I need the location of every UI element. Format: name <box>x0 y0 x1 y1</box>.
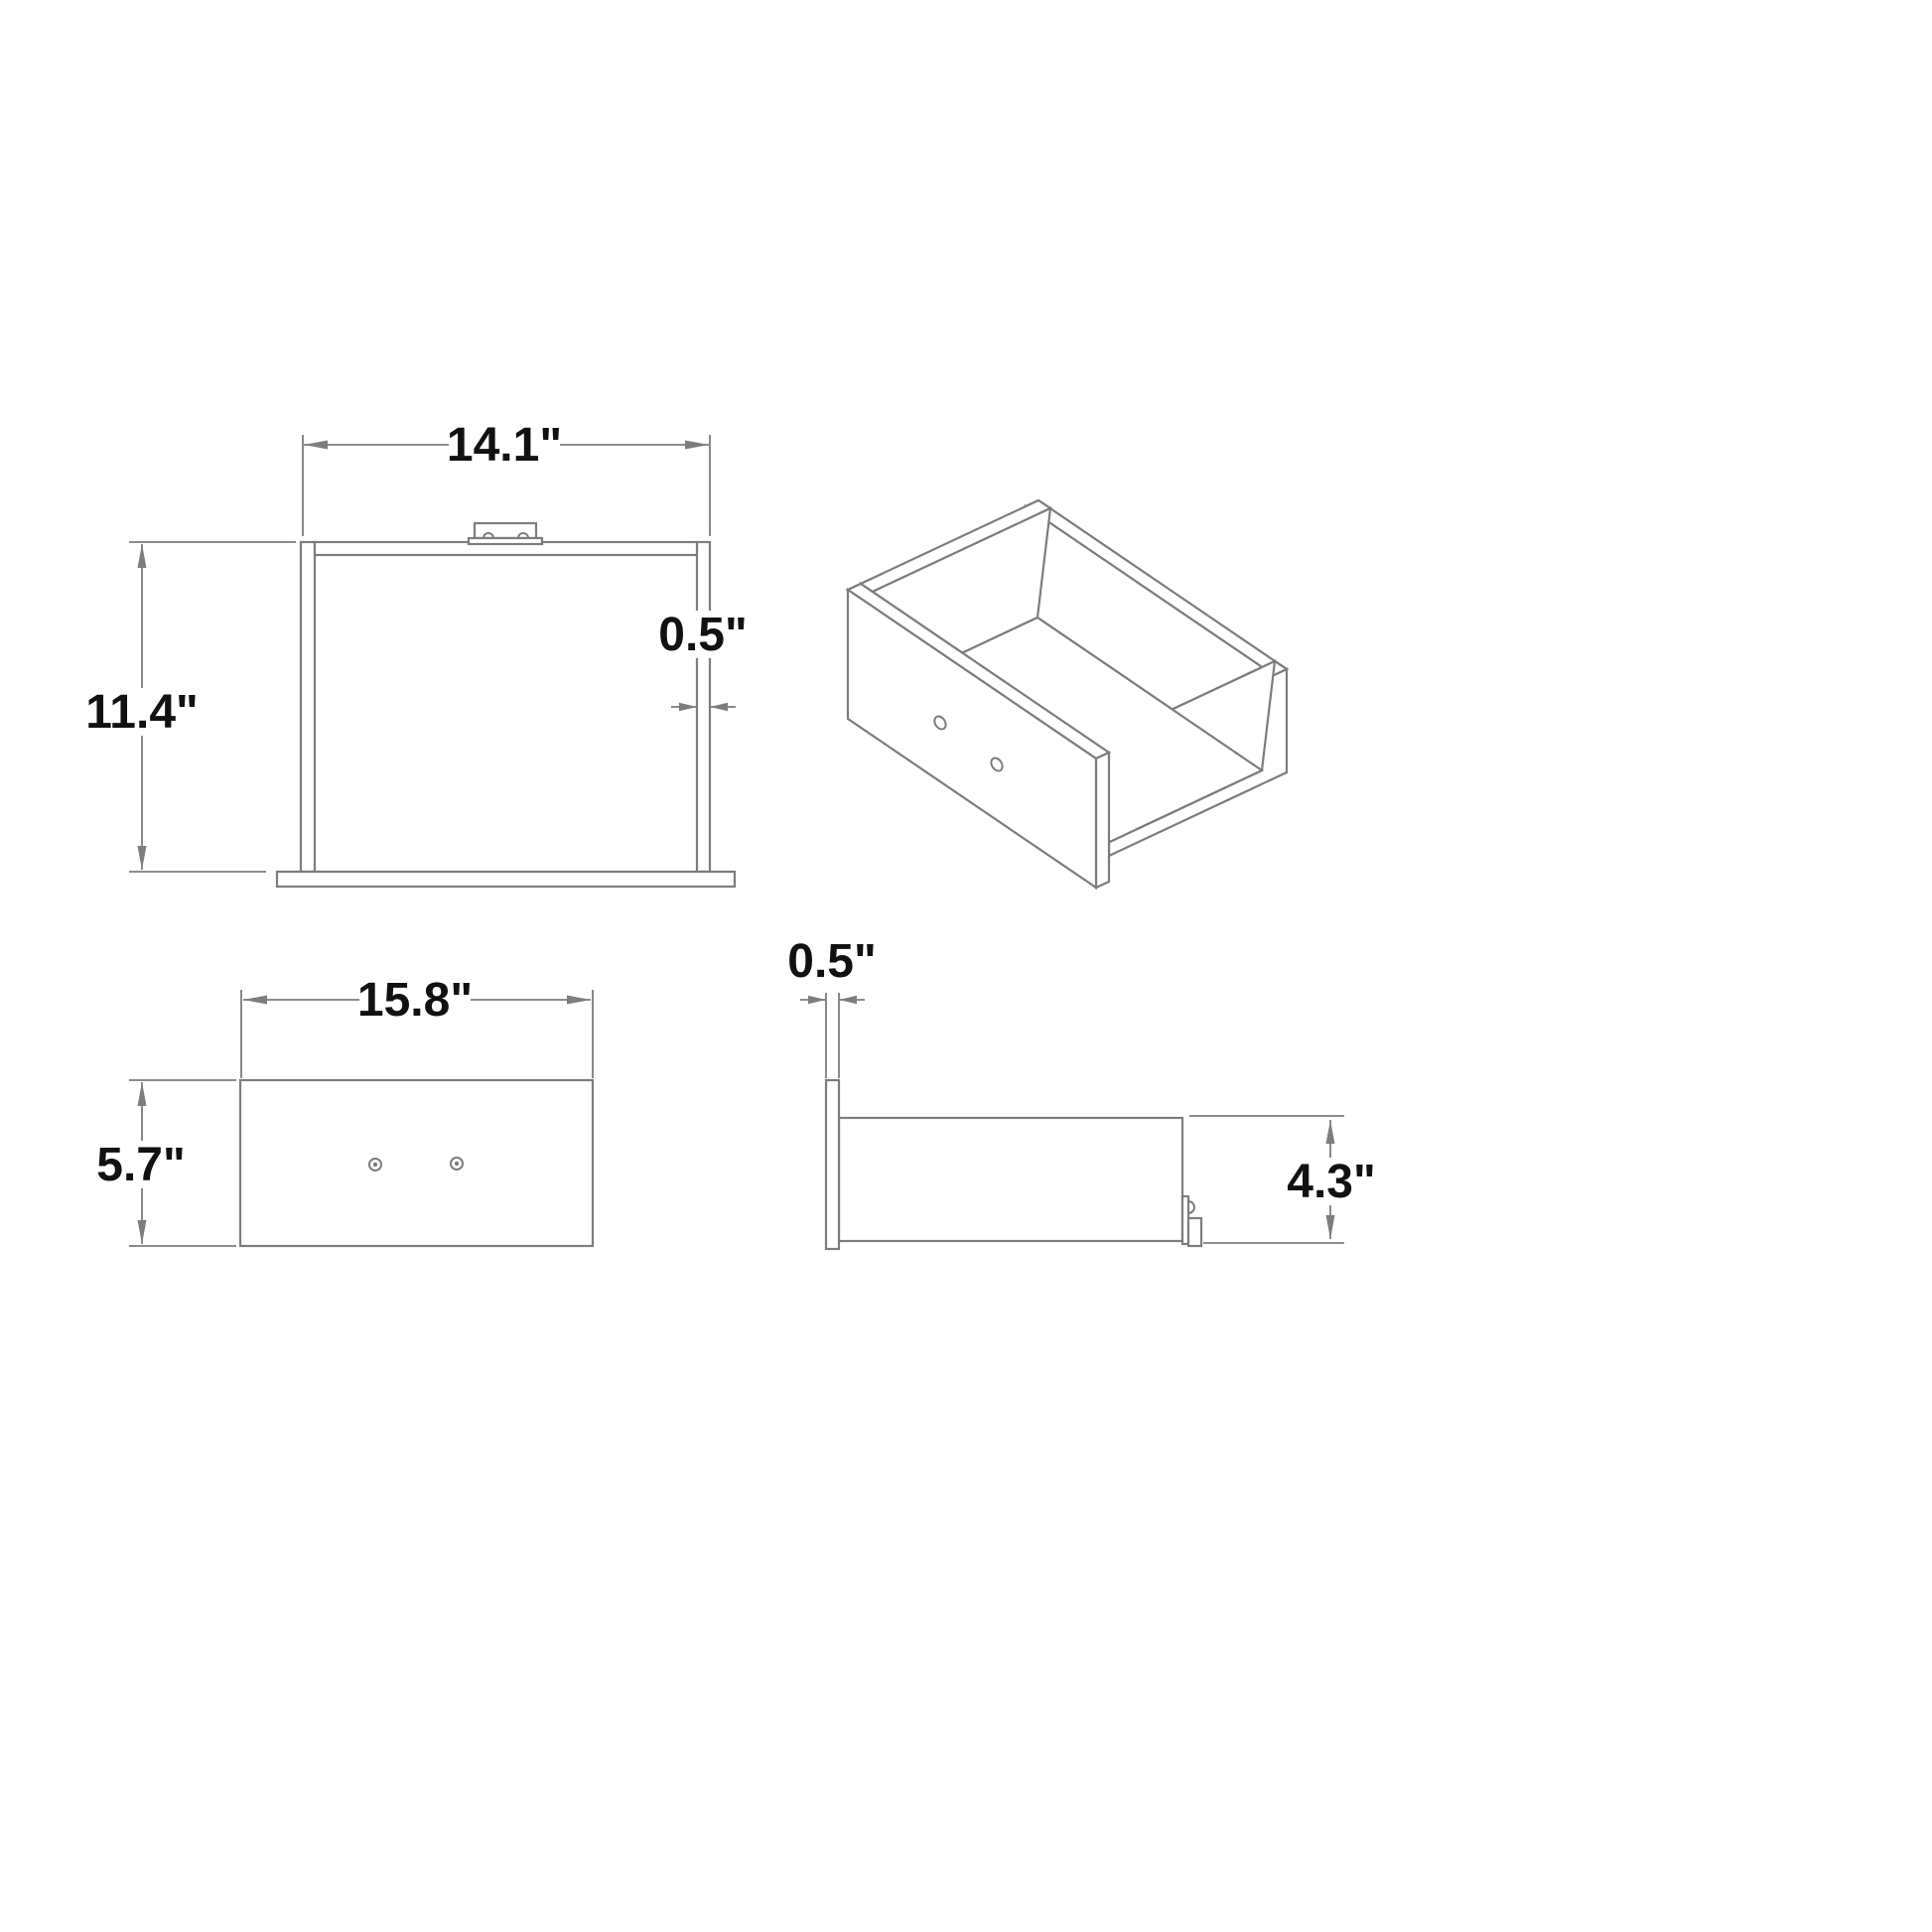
dim-side-thickness: 0.5" <box>787 935 876 1078</box>
dim-front-height: 5.7" <box>89 1080 236 1246</box>
dim-top-width: 14.1" <box>303 419 710 536</box>
side-front-panel-bar <box>826 1080 839 1249</box>
dimension-label: 14.1" <box>447 419 562 472</box>
top-view-front-panel-strip <box>277 872 735 887</box>
arrowhead <box>679 703 697 711</box>
arrowhead <box>567 996 591 1005</box>
arrowhead <box>138 544 147 568</box>
dimension-label: 0.5" <box>787 935 876 988</box>
arrowhead <box>1326 1120 1335 1144</box>
front-panel-outline <box>240 1080 593 1246</box>
arrowhead <box>808 996 826 1004</box>
dimension-label: 5.7" <box>96 1139 185 1191</box>
side-body-outline <box>839 1118 1182 1241</box>
arrowhead <box>138 846 147 870</box>
dimension-label: 11.4" <box>85 686 199 739</box>
arrowhead <box>138 1220 147 1244</box>
iso-front-end-face <box>1096 753 1109 888</box>
arrowhead <box>710 703 728 711</box>
arrowhead <box>685 441 709 450</box>
arrowhead <box>839 996 857 1004</box>
isometric-view <box>848 500 1287 888</box>
slide-bracket-detail <box>1182 1196 1201 1246</box>
front-view: 15.8" 5.7" <box>89 974 593 1246</box>
arrowhead <box>304 441 328 450</box>
side-view: 0.5" 4.3" <box>787 935 1384 1249</box>
bracket-base <box>469 538 542 544</box>
technical-drawing-canvas: 14.1" 11.4" 0.5" <box>0 0 1932 1932</box>
dim-top-height: 11.4" <box>85 542 296 872</box>
top-view: 14.1" 11.4" 0.5" <box>85 419 751 887</box>
top-view-right-wall <box>697 542 710 872</box>
top-view-left-wall <box>301 542 315 872</box>
bracket-detail <box>469 523 542 544</box>
drawer-dimension-drawing: 14.1" 11.4" 0.5" <box>0 0 1932 1932</box>
dimension-label: 0.5" <box>658 609 747 661</box>
dimension-label: 15.8" <box>357 974 473 1027</box>
arrowhead <box>243 996 267 1005</box>
arrowhead <box>138 1082 147 1106</box>
dim-side-height: 4.3" <box>1189 1116 1384 1243</box>
arrowhead <box>1326 1215 1335 1239</box>
dim-front-width: 15.8" <box>241 974 593 1078</box>
dimension-label: 4.3" <box>1287 1156 1375 1208</box>
